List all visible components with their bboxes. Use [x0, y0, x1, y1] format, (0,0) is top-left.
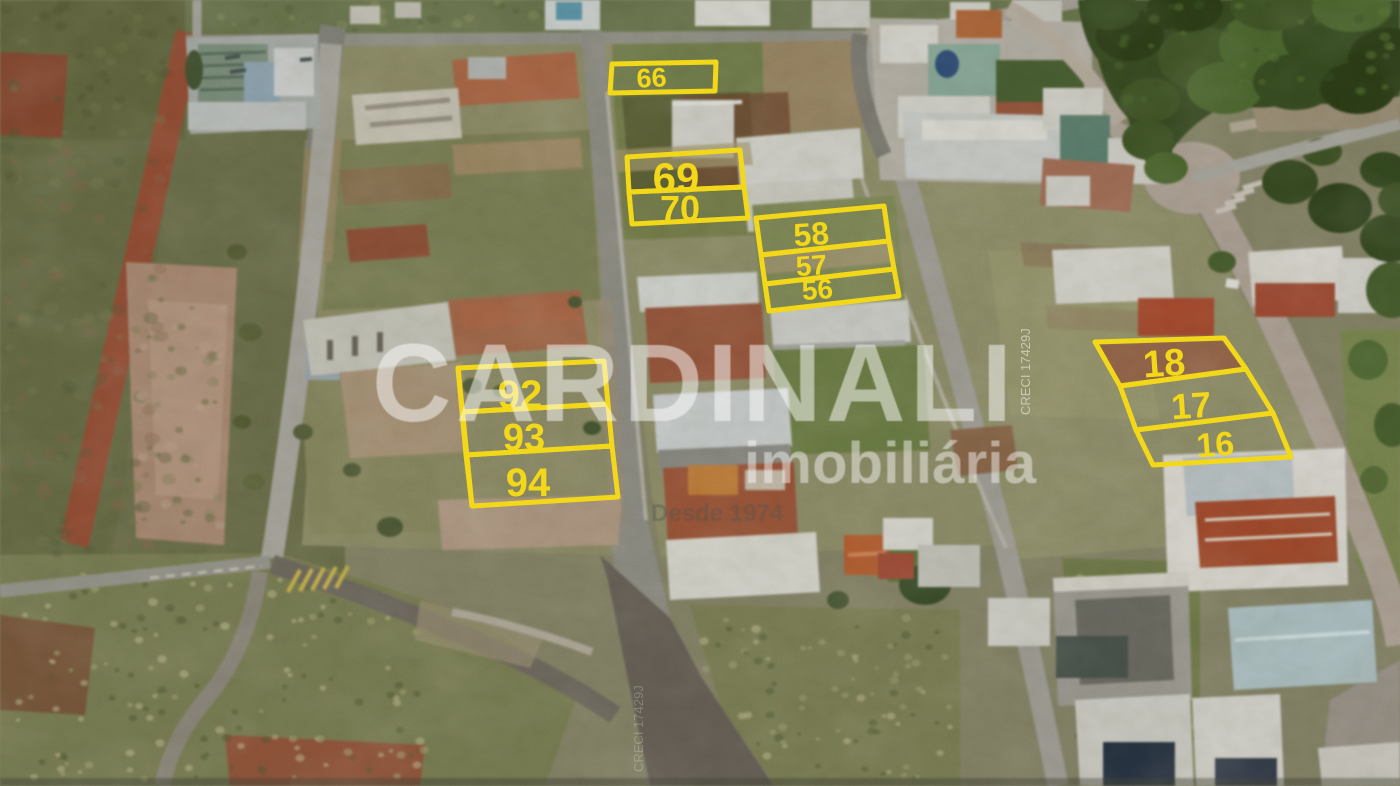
svg-text:66: 66 [636, 62, 668, 94]
svg-text:94: 94 [506, 461, 551, 505]
svg-text:CRECI 17429J: CRECI 17429J [631, 685, 646, 772]
svg-text:56: 56 [801, 273, 834, 306]
svg-text:16: 16 [1195, 425, 1235, 466]
svg-text:70: 70 [660, 188, 700, 229]
svg-text:CRECI 17429J: CRECI 17429J [1018, 328, 1033, 415]
svg-text:imobiliária: imobiliária [744, 431, 1037, 496]
svg-text:CARDINALI: CARDINALI [372, 322, 1012, 445]
svg-text:Desde 1974: Desde 1974 [651, 500, 784, 527]
